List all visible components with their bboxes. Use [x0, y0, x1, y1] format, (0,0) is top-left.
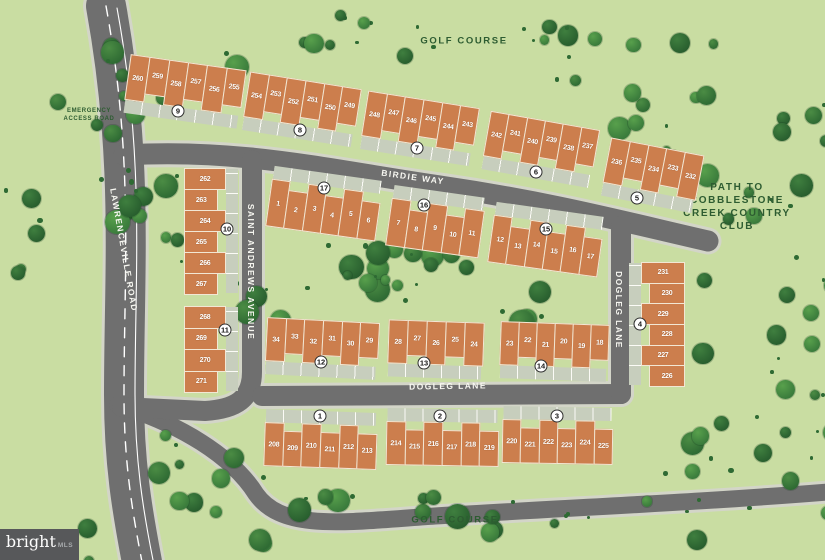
shrub-icon [566, 512, 570, 516]
shrub-icon [565, 26, 569, 30]
lot-number: 266 [185, 253, 225, 273]
shrub-icon [129, 179, 134, 184]
lot-223: 223 [557, 428, 577, 464]
driveway [226, 307, 238, 391]
lot-number: 208 [264, 423, 283, 466]
phase-badge-15: 15 [540, 223, 553, 236]
lot-214: 214 [386, 421, 406, 465]
phase-badge-16: 16 [418, 199, 431, 212]
lot-number: 215 [405, 430, 423, 464]
tree-icon [803, 305, 819, 321]
tree-icon [773, 123, 791, 141]
phase-badge-11: 11 [219, 324, 232, 337]
watermark-suffix: MLS [58, 542, 73, 549]
tree-icon [11, 266, 24, 279]
lot-number: 228 [650, 325, 684, 345]
lot-number: 26 [426, 322, 445, 365]
lot-number: 219 [480, 432, 498, 466]
tree-icon [628, 115, 644, 131]
lot-number: 214 [387, 422, 405, 464]
lot-222: 222 [538, 420, 558, 464]
lot-267: 267 [184, 273, 218, 295]
lot-228: 228 [649, 324, 685, 346]
shrub-icon [511, 500, 515, 504]
phase-badge-8: 8 [294, 124, 307, 137]
tree-icon [392, 280, 403, 291]
lot-number: 20 [555, 324, 573, 359]
lot-23: 23 [499, 321, 520, 366]
lot-227: 227 [641, 345, 685, 367]
lot-number: 19 [572, 325, 590, 368]
tree-icon [685, 464, 700, 479]
lot-262: 262 [184, 168, 226, 190]
shrub-icon [770, 370, 774, 374]
shrub-icon [224, 51, 229, 56]
bright-mls-watermark: bright MLS [0, 529, 79, 560]
lot-number: 25 [446, 322, 465, 357]
phase-badge-1: 1 [314, 410, 327, 423]
lot-34: 34 [265, 317, 287, 362]
phase-badge-4: 4 [634, 318, 647, 331]
lot-number: 271 [185, 372, 217, 393]
building-lots-231-226: 231230229228227226 [641, 262, 685, 386]
tree-icon [767, 325, 787, 345]
emergency-access-line1: EMERGENCY [64, 107, 115, 115]
lot-number: 30 [341, 322, 361, 365]
shrub-icon [304, 497, 308, 501]
lot-number: 226 [650, 366, 684, 386]
lot-number: 262 [185, 169, 225, 189]
emergency-access-label: EMERGENCY ACCESS ROAD [64, 107, 115, 123]
lot-226: 226 [649, 365, 685, 387]
tree-icon [692, 427, 709, 444]
lot-number: 220 [503, 420, 521, 462]
lot-24: 24 [463, 322, 485, 367]
lot-number: 212 [339, 426, 358, 469]
lot-number: 213 [358, 434, 377, 469]
lot-number: 223 [558, 429, 576, 463]
tree-icon [776, 380, 795, 399]
lot-269: 269 [184, 328, 218, 351]
lot-number: 255 [222, 69, 245, 107]
shrub-icon [587, 516, 590, 519]
tree-icon [540, 35, 550, 45]
shrub-icon [99, 177, 104, 182]
lot-263: 263 [184, 189, 218, 211]
shrub-icon [821, 393, 825, 397]
phase-badge-2: 2 [434, 410, 447, 423]
shrub-icon [126, 168, 131, 173]
building-lots-28-24: 2827262524 [387, 319, 483, 366]
tree-icon [101, 41, 123, 63]
tree-icon [249, 529, 271, 551]
building-lots-220-225: 220221222223224225 [502, 419, 613, 465]
lot-number: 268 [185, 307, 225, 328]
shrub-icon [106, 59, 110, 63]
tree-icon [810, 390, 820, 400]
lot-number: 218 [461, 423, 479, 465]
watermark-brand: bright [6, 534, 56, 550]
phase-badge-3: 3 [551, 410, 564, 423]
lot-number: 221 [521, 428, 539, 462]
tree-icon [154, 174, 178, 198]
lot-216: 216 [423, 422, 443, 466]
tree-icon [210, 506, 222, 518]
lot-number: 227 [642, 346, 684, 366]
lot-230: 230 [649, 283, 685, 305]
lot-30: 30 [340, 321, 362, 366]
golf-course-label-bottom: GOLF COURSE [411, 515, 498, 526]
shrub-icon [728, 468, 733, 473]
tree-icon [697, 273, 712, 288]
shrub-icon [522, 27, 526, 31]
lot-209: 209 [282, 431, 303, 468]
tree-icon [687, 530, 707, 550]
lot-number: 31 [322, 321, 341, 356]
tree-icon [22, 189, 41, 208]
lot-number: 269 [185, 329, 217, 350]
phase-badge-12: 12 [315, 356, 328, 369]
lot-229: 229 [641, 303, 685, 325]
shrub-icon [4, 188, 9, 193]
lot-number: 217 [443, 431, 461, 465]
lot-number: 270 [185, 350, 225, 371]
tree-icon [78, 519, 97, 538]
tree-icon [171, 233, 184, 246]
lot-217: 217 [442, 430, 462, 466]
lot-number: 225 [594, 430, 612, 464]
tree-icon [780, 427, 791, 438]
lot-211: 211 [319, 432, 340, 469]
phase-badge-14: 14 [535, 360, 548, 373]
lot-number: 24 [464, 323, 483, 366]
tree-icon [161, 232, 172, 243]
lot-29: 29 [359, 322, 381, 359]
lot-number: 211 [320, 433, 339, 468]
street-label-saint-andrews: SAINT ANDREWS AVENUE [246, 204, 256, 340]
tree-icon [697, 86, 716, 105]
emergency-access-line2: ACCESS ROAD [64, 115, 115, 123]
tree-icon [709, 39, 718, 48]
building-lots-208-213: 208209210211212213 [263, 422, 376, 470]
tree-icon [626, 38, 640, 52]
street-label-dogleg-lane: DOGLEG LANE [409, 380, 487, 391]
lot-number: 210 [302, 424, 321, 467]
shrub-icon [500, 309, 505, 314]
shrub-icon [685, 510, 689, 514]
shrub-icon [747, 506, 752, 511]
tree-icon [588, 32, 602, 46]
shrub-icon [326, 243, 330, 247]
tree-icon [104, 125, 121, 142]
lot-225: 225 [593, 429, 613, 465]
building-lots-262-267: 262263264265266267 [184, 168, 226, 294]
tree-icon [160, 430, 171, 441]
lot-28: 28 [387, 319, 409, 364]
shrub-icon [416, 25, 420, 29]
lot-215: 215 [404, 429, 424, 465]
lot-number: 224 [576, 421, 594, 463]
lot-25: 25 [445, 321, 466, 358]
lot-number: 23 [500, 322, 518, 365]
tree-icon [642, 496, 652, 506]
lot-213: 213 [357, 433, 378, 470]
lot-number: 33 [285, 319, 304, 354]
tree-icon [288, 498, 311, 521]
lot-number: 216 [424, 423, 442, 465]
lot-number: 229 [642, 304, 684, 324]
site-plan-map: 2602592582572562552542532522512502492482… [0, 0, 825, 560]
building-lots-23-18: 232221201918 [499, 321, 608, 369]
lot-number: 230 [650, 284, 684, 304]
tree-icon [529, 281, 551, 303]
tree-icon [212, 469, 230, 487]
lot-224: 224 [575, 420, 595, 464]
lot-number: 28 [388, 320, 407, 363]
shrub-icon [134, 189, 138, 193]
lot-27: 27 [407, 320, 428, 357]
phase-badge-13: 13 [418, 357, 431, 370]
lot-266: 266 [184, 252, 226, 274]
shrub-icon [37, 218, 42, 223]
tree-icon [381, 275, 391, 285]
tree-icon [542, 20, 556, 34]
lot-number: 22 [519, 323, 537, 358]
shrub-icon [709, 456, 714, 461]
tree-icon [782, 472, 799, 489]
lot-number: 263 [185, 190, 217, 210]
tree-icon [481, 523, 499, 541]
tree-icon [304, 34, 323, 53]
lot-218: 218 [460, 422, 480, 466]
lot-271: 271 [184, 371, 218, 394]
phase-badge-10: 10 [221, 223, 234, 236]
lot-number: 27 [408, 321, 427, 356]
lot-number: 267 [185, 274, 217, 294]
shrub-icon [305, 286, 309, 290]
phase-badge-5: 5 [631, 192, 644, 205]
tree-icon [636, 98, 650, 112]
phase-badge-17: 17 [318, 182, 331, 195]
phase-badge-9: 9 [172, 105, 185, 118]
lot-231: 231 [641, 262, 685, 284]
golf-course-label-top: GOLF COURSE [420, 36, 507, 47]
tree-icon [459, 260, 474, 275]
street-label-dogleg-lane-north: DOGLEG LANE [614, 271, 624, 349]
lot-number: 209 [283, 432, 302, 467]
lot-number: 18 [591, 325, 609, 360]
building-lots-214-219: 214215216217218219 [386, 421, 499, 467]
lot-number: 29 [360, 323, 379, 358]
lot-265: 265 [184, 231, 218, 253]
phase-badge-7: 7 [411, 142, 424, 155]
shrub-icon [403, 298, 408, 303]
shrub-icon [415, 283, 418, 286]
lot-18: 18 [589, 324, 609, 361]
lot-221: 221 [520, 427, 540, 463]
lot-270: 270 [184, 349, 226, 372]
lot-number: 265 [185, 232, 217, 252]
lot-220: 220 [502, 419, 522, 463]
lot-19: 19 [571, 324, 592, 369]
phase-badge-6: 6 [530, 166, 543, 179]
lot-219: 219 [479, 431, 499, 467]
tree-icon [692, 343, 714, 365]
building-lots-268-271: 268269270271 [184, 306, 226, 392]
lot-number: 34 [266, 318, 286, 361]
lot-number: 264 [185, 211, 225, 231]
lot-number: 222 [539, 421, 557, 463]
shrub-icon [697, 498, 701, 502]
lot-number: 231 [642, 263, 684, 283]
shrub-icon [410, 253, 413, 256]
tree-icon [779, 287, 795, 303]
